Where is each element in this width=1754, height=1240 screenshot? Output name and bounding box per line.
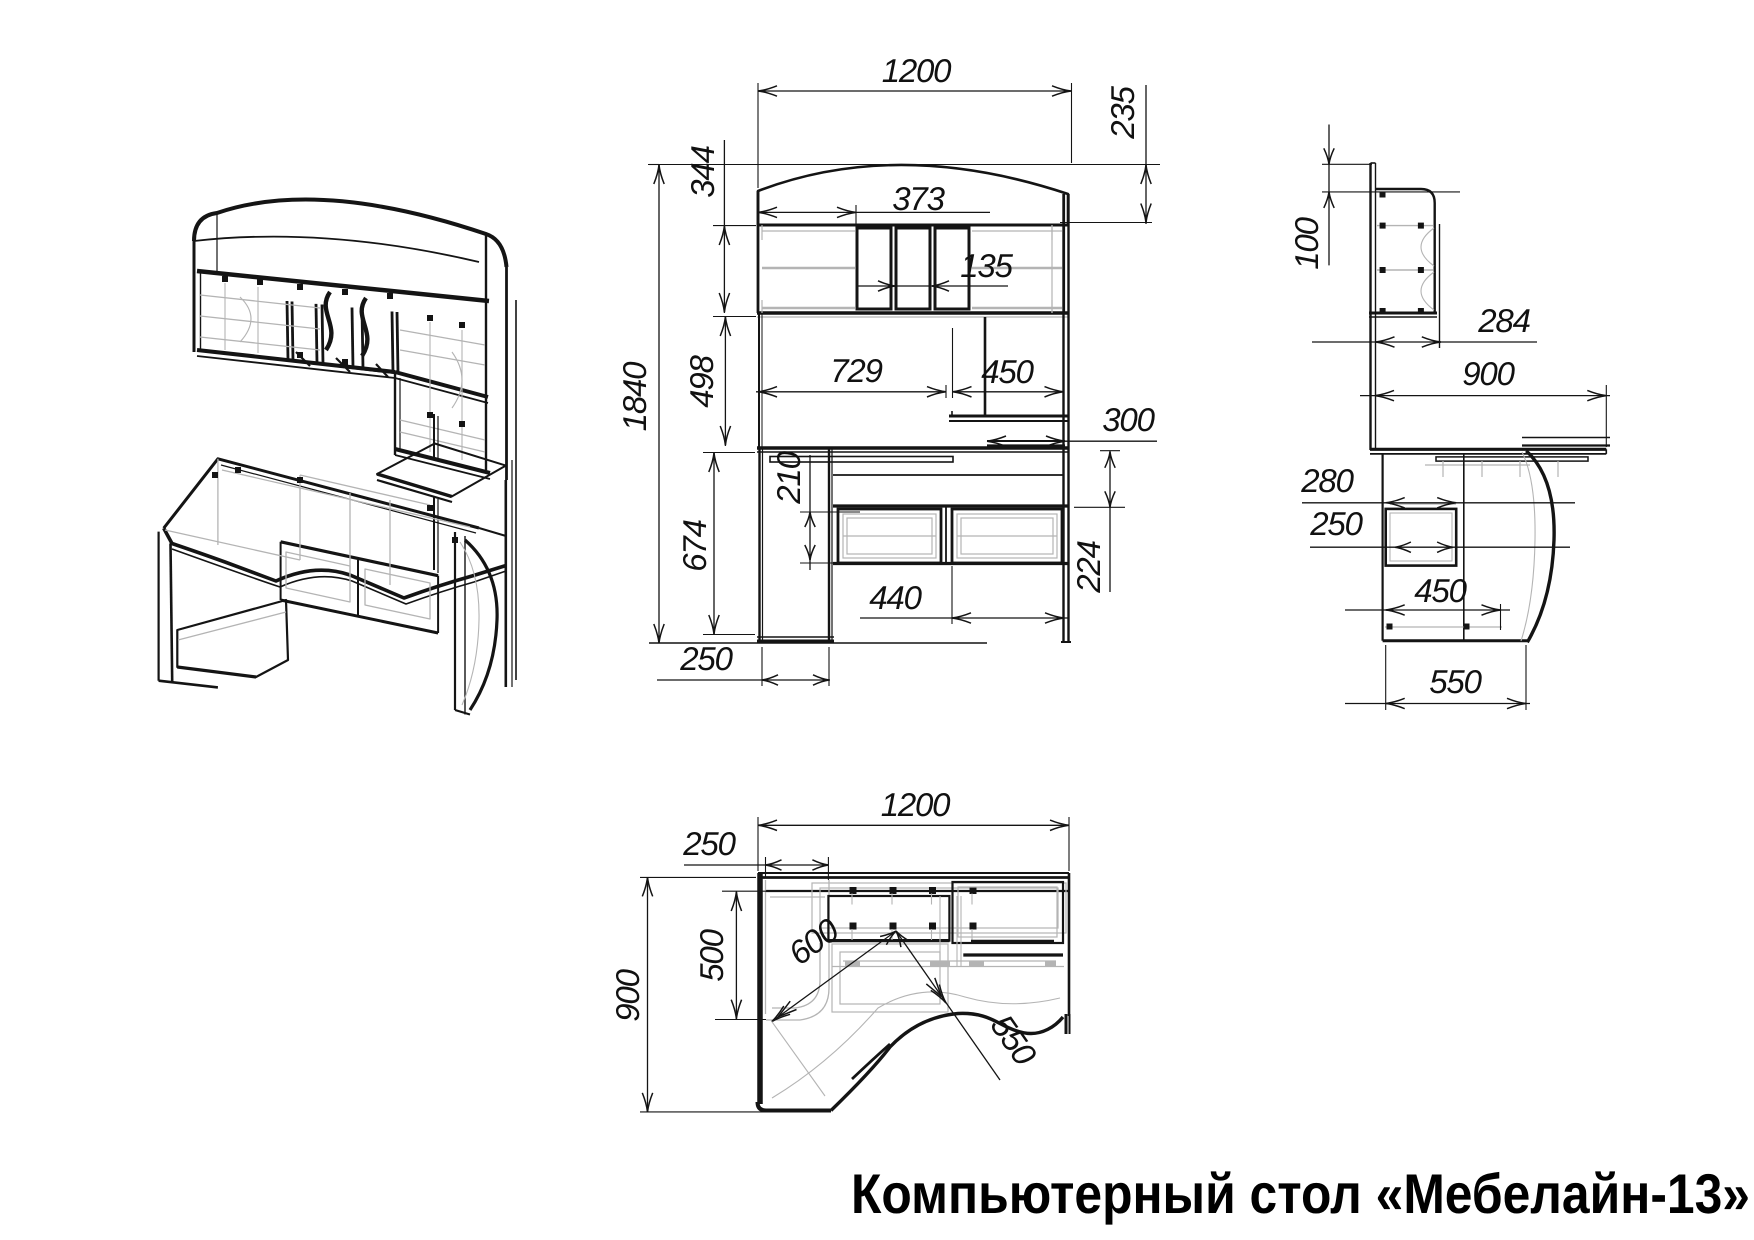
svg-text:344: 344: [684, 145, 721, 197]
svg-text:135: 135: [960, 247, 1013, 284]
svg-text:280: 280: [1300, 462, 1354, 499]
svg-text:Компьютерный стол «Мебелайн-13: Компьютерный стол «Мебелайн-13»: [851, 1162, 1750, 1225]
svg-text:250: 250: [679, 640, 733, 677]
svg-text:1840: 1840: [616, 361, 653, 431]
svg-text:1200: 1200: [881, 786, 951, 823]
svg-text:1200: 1200: [882, 52, 952, 89]
svg-text:450: 450: [1414, 572, 1467, 609]
svg-text:235: 235: [1104, 85, 1141, 139]
svg-text:250: 250: [1309, 505, 1363, 542]
svg-text:284: 284: [1477, 302, 1530, 339]
svg-text:729: 729: [830, 352, 882, 389]
svg-text:373: 373: [892, 180, 945, 217]
svg-text:100: 100: [1288, 216, 1325, 269]
svg-text:900: 900: [1462, 355, 1515, 392]
svg-text:250: 250: [682, 825, 736, 862]
svg-text:224: 224: [1070, 540, 1107, 593]
svg-text:440: 440: [869, 579, 922, 616]
svg-text:674: 674: [676, 519, 713, 571]
svg-text:550: 550: [1429, 663, 1482, 700]
svg-text:300: 300: [1102, 401, 1155, 438]
svg-text:900: 900: [609, 968, 646, 1021]
svg-text:498: 498: [683, 354, 720, 407]
svg-text:210: 210: [770, 450, 807, 504]
svg-text:450: 450: [981, 353, 1034, 390]
svg-text:500: 500: [693, 928, 730, 981]
